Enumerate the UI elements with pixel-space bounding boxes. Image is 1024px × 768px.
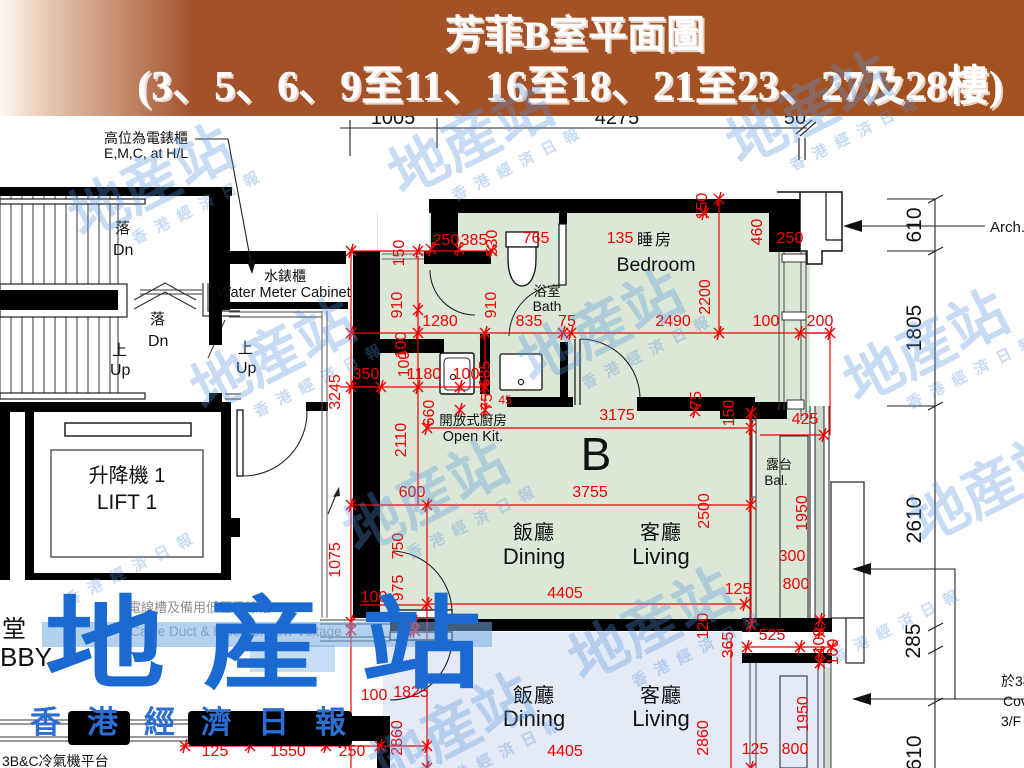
svg-text:Dn: Dn (113, 242, 133, 259)
svg-text:800: 800 (782, 741, 809, 758)
svg-text:250: 250 (433, 232, 460, 249)
svg-text:Living: Living (632, 706, 689, 731)
svg-text:1075: 1075 (327, 542, 344, 578)
svg-text:客廳: 客廳 (640, 684, 682, 707)
svg-text:460: 460 (749, 219, 766, 246)
svg-text:300: 300 (779, 548, 806, 565)
svg-text:75: 75 (688, 391, 705, 409)
svg-text:1280: 1280 (422, 313, 458, 330)
svg-text:100: 100 (753, 313, 780, 330)
svg-text:芳菲B室平面圖: 芳菲B室平面圖 (445, 14, 705, 57)
svg-text:客廳: 客廳 (640, 521, 682, 544)
svg-text:香港經濟日報: 香港經濟日報 (30, 705, 372, 740)
svg-text:150: 150 (694, 193, 711, 220)
svg-text:2860: 2860 (695, 720, 712, 756)
svg-text:4405: 4405 (547, 585, 583, 602)
svg-text:150: 150 (391, 240, 408, 267)
svg-text:3/F C: 3/F C (1001, 713, 1024, 729)
svg-text:530: 530 (484, 230, 501, 257)
svg-text:610: 610 (903, 735, 926, 768)
svg-text:135: 135 (607, 230, 634, 247)
svg-text:3755: 3755 (572, 484, 608, 501)
svg-text:Living: Living (632, 544, 689, 569)
svg-text:於3樓: 於3樓 (1001, 673, 1024, 689)
svg-text:2110: 2110 (393, 423, 410, 458)
svg-text:45: 45 (498, 393, 512, 407)
svg-text:800: 800 (783, 576, 810, 593)
svg-text:升降機 1: 升降機 1 (89, 464, 166, 487)
svg-text:3175: 3175 (599, 407, 635, 424)
svg-text:Bath: Bath (533, 298, 562, 314)
svg-text:上: 上 (112, 342, 127, 359)
svg-text:浴室: 浴室 (534, 283, 561, 299)
svg-text:425: 425 (792, 411, 819, 428)
svg-text:Cove: Cove (1003, 693, 1024, 709)
svg-text:地産站: 地産站 (45, 589, 519, 701)
svg-text:150: 150 (721, 400, 738, 427)
svg-text:1950: 1950 (794, 495, 811, 531)
svg-text:飯廳: 飯廳 (513, 521, 555, 544)
svg-text:堂: 堂 (2, 616, 26, 643)
svg-text:4405: 4405 (547, 743, 583, 760)
svg-text:200: 200 (807, 313, 834, 330)
svg-text:525: 525 (759, 627, 786, 644)
svg-text:2500: 2500 (696, 493, 713, 529)
svg-text:B: B (581, 428, 612, 480)
svg-text:910: 910 (389, 292, 406, 319)
svg-text:Bal.: Bal. (764, 473, 787, 488)
svg-text:660: 660 (421, 400, 438, 427)
svg-text:1180: 1180 (407, 366, 442, 383)
svg-text:75: 75 (479, 393, 496, 411)
svg-text:睡房: 睡房 (637, 231, 673, 249)
svg-text:LIFT 1: LIFT 1 (97, 491, 157, 514)
svg-text:250: 250 (777, 230, 804, 247)
svg-text:1950: 1950 (795, 696, 812, 732)
svg-text:765: 765 (523, 230, 550, 247)
svg-text:100: 100 (453, 366, 480, 383)
svg-text:3B&C冷氣機平台: 3B&C冷氣機平台 (2, 753, 109, 768)
svg-text:水錶櫃: 水錶櫃 (264, 268, 306, 284)
svg-text:610: 610 (903, 207, 926, 242)
svg-text:910: 910 (483, 292, 500, 319)
svg-text:開放式廚房: 開放式廚房 (439, 412, 507, 428)
svg-text:Dn: Dn (148, 333, 168, 350)
svg-text:Up: Up (110, 362, 131, 379)
svg-text:露台: 露台 (766, 457, 792, 472)
svg-text:685: 685 (477, 361, 494, 388)
svg-text:125: 125 (742, 741, 769, 758)
svg-text:落: 落 (150, 311, 165, 328)
svg-text:Arch. F: Arch. F (990, 219, 1024, 236)
svg-text:Dining: Dining (503, 544, 565, 569)
